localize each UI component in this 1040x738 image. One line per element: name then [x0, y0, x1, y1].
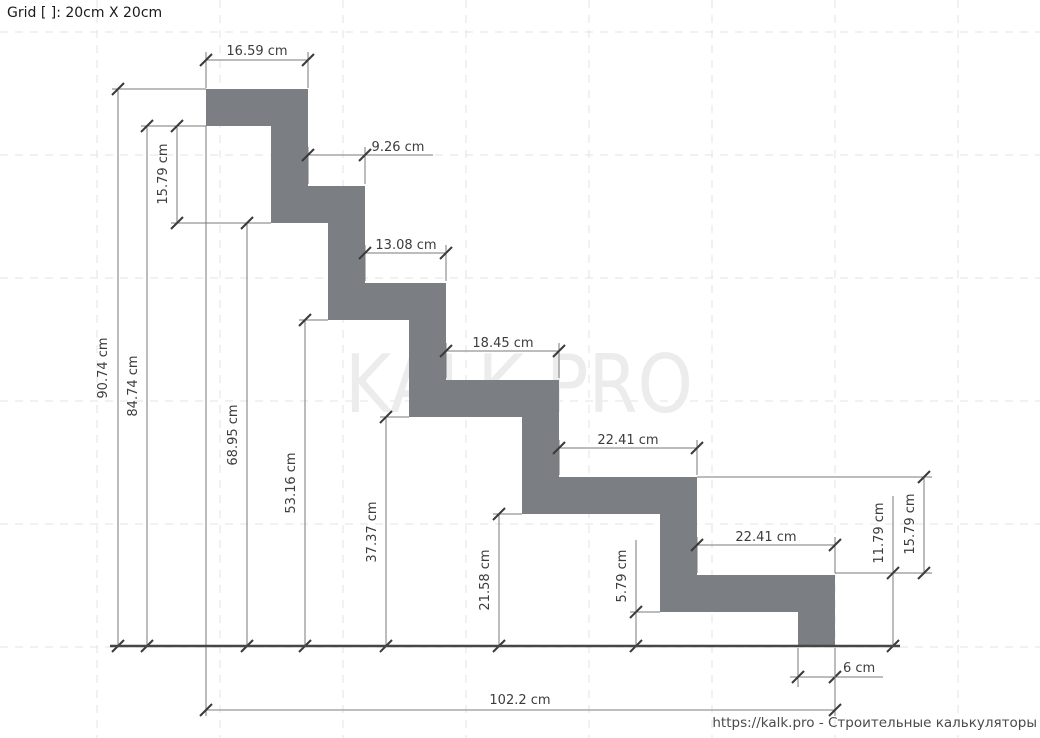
- dimension-label-height-step-2: 68.95 cm: [226, 404, 241, 465]
- footer-credit: https://kalk.pro - Строительные калькуля…: [712, 715, 1037, 731]
- dimension-tread-2-width: 9.26 cm: [302, 140, 433, 184]
- dimension-riser-right: 15.79 cm: [697, 471, 932, 579]
- dimension-tread-1-width: 16.59 cm: [200, 44, 314, 88]
- dimension-label-tread-5-width: 22.41 cm: [597, 433, 658, 448]
- stair-stringer-drawing: KALK.PRO 16.59 cm9.26 cm13.08 cm18.45 cm…: [0, 0, 1040, 738]
- dimension-label-tread-6-width: 22.41 cm: [735, 530, 796, 545]
- dimension-height-step-5: 21.58 cm: [478, 508, 522, 652]
- profile-and-dimensions-layer: 16.59 cm9.26 cm13.08 cm18.45 cm22.41 cm2…: [96, 44, 932, 716]
- dimension-label-height-step-6: 5.79 cm: [615, 550, 630, 603]
- dimension-riser-left: 15.79 cm: [156, 120, 271, 229]
- dimension-height-step-3: 53.16 cm: [284, 314, 328, 652]
- dimension-tread-5-width: 22.41 cm: [553, 433, 703, 475]
- dimension-total-height: 90.74 cm: [96, 83, 206, 652]
- dimension-label-total-run: 102.2 cm: [489, 693, 550, 708]
- dimension-label-height-step-3: 53.16 cm: [284, 452, 299, 513]
- dimension-height-step-4: 37.37 cm: [365, 411, 409, 652]
- dimension-label-tread-4-width: 18.45 cm: [472, 336, 533, 351]
- dimension-label-height-step-5: 21.58 cm: [478, 549, 493, 610]
- dimension-end-width: 6 cm: [790, 648, 883, 687]
- grid-size-label: Grid [ ]: 20cm X 20cm: [7, 5, 162, 21]
- dimension-label-tread-3-width: 13.08 cm: [375, 238, 436, 253]
- dimension-label-total-height: 90.74 cm: [96, 337, 111, 398]
- dimension-label-end-height: 11.79 cm: [872, 502, 887, 563]
- dimension-label-tread-2-width: 9.26 cm: [372, 140, 425, 155]
- dimension-label-tread-1-width: 16.59 cm: [226, 44, 287, 59]
- dimension-label-riser-right: 15.79 cm: [903, 493, 918, 554]
- dimension-label-height-to-inner-top: 84.74 cm: [126, 355, 141, 416]
- dimension-tread-3-width: 13.08 cm: [359, 238, 452, 281]
- dimension-height-step-6: 5.79 cm: [615, 540, 660, 652]
- drawing-area: KALK.PRO 16.59 cm9.26 cm13.08 cm18.45 cm…: [0, 0, 1040, 738]
- dimension-tread-6-width: 22.41 cm: [691, 530, 841, 573]
- dimension-label-height-step-4: 37.37 cm: [365, 501, 380, 562]
- dimension-label-riser-left: 15.79 cm: [156, 143, 171, 204]
- dimension-label-end-width: 6 cm: [843, 661, 875, 676]
- dimension-height-step-2: 68.95 cm: [226, 217, 253, 652]
